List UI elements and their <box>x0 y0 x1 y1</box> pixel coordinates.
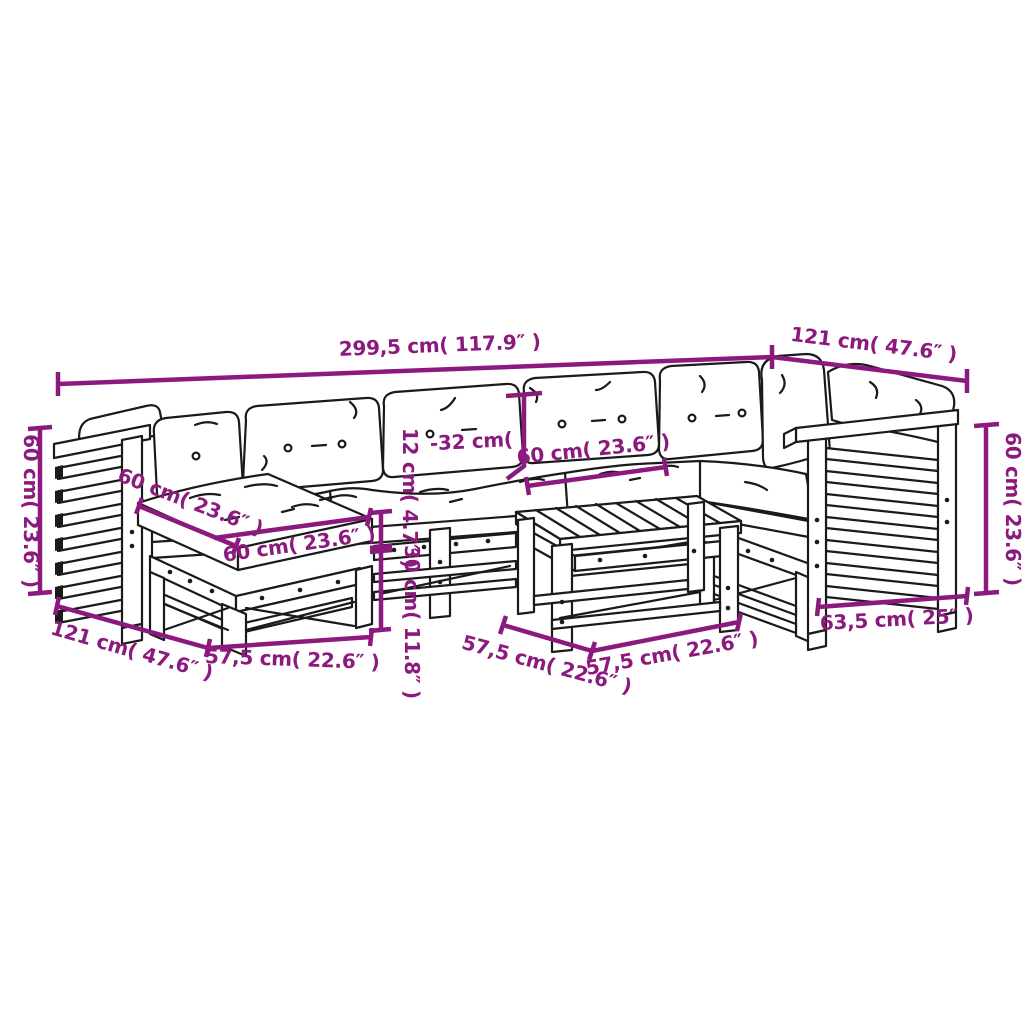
dim-line-right-height <box>974 424 999 594</box>
label-left-arm-height: 60 cm( 23.6″ ) <box>19 434 43 588</box>
diagram-canvas: 299,5 cm( 117.9″ ) 121 cm( 47.6″ ) 60 cm… <box>0 0 1024 1024</box>
label-right-arm-height: 60 cm( 23.6″ ) <box>1001 432 1024 586</box>
product-dimension-diagram: 299,5 cm( 117.9″ ) 121 cm( 47.6″ ) 60 cm… <box>0 0 1024 1024</box>
label-back-cushion-height: -32 cm( <box>429 427 513 455</box>
label-ottoman-frame-width: 57,5 cm( 22.6″ ) <box>205 644 380 674</box>
label-total-width: 299,5 cm( 117.9″ ) <box>338 329 541 361</box>
label-frame-height: 30 cm( 11.8″ ) <box>400 545 424 699</box>
